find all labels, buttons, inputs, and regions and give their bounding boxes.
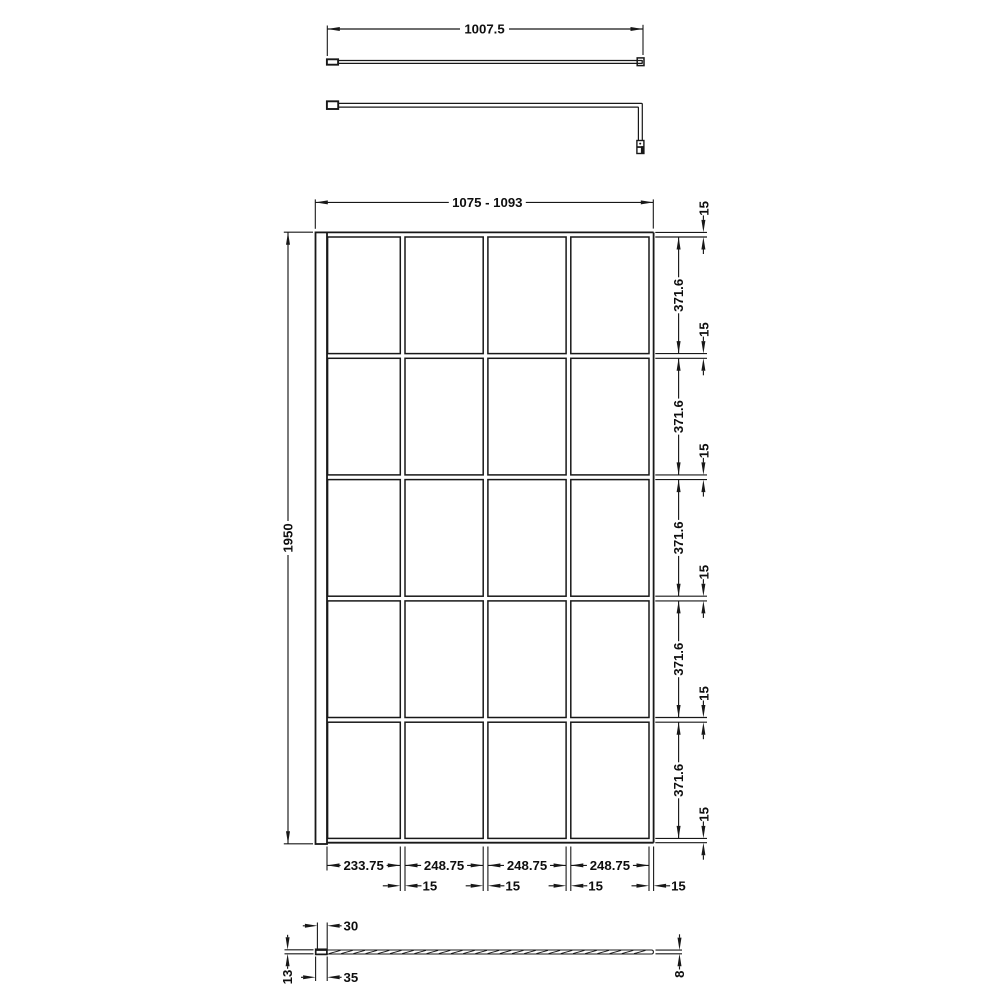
svg-text:8: 8 — [672, 971, 687, 978]
svg-text:1007.5: 1007.5 — [464, 22, 504, 37]
svg-text:15: 15 — [696, 201, 711, 216]
svg-text:248.75: 248.75 — [424, 858, 464, 873]
svg-text:371.6: 371.6 — [671, 400, 686, 433]
svg-text:15: 15 — [588, 878, 603, 893]
svg-text:1950: 1950 — [281, 523, 296, 552]
svg-text:15: 15 — [505, 878, 520, 893]
svg-text:15: 15 — [696, 565, 711, 580]
svg-text:371.6: 371.6 — [671, 764, 686, 797]
svg-text:371.6: 371.6 — [671, 521, 686, 554]
svg-text:15: 15 — [696, 444, 711, 459]
svg-text:1075 - 1093: 1075 - 1093 — [452, 195, 522, 210]
svg-text:15: 15 — [696, 686, 711, 701]
svg-text:371.6: 371.6 — [671, 643, 686, 676]
svg-text:248.75: 248.75 — [507, 858, 547, 873]
svg-text:15: 15 — [423, 878, 438, 893]
svg-text:13: 13 — [280, 970, 295, 985]
svg-text:248.75: 248.75 — [590, 858, 630, 873]
svg-text:15: 15 — [671, 878, 686, 893]
svg-text:233.75: 233.75 — [343, 858, 383, 873]
svg-text:35: 35 — [344, 970, 359, 985]
svg-text:15: 15 — [696, 807, 711, 822]
svg-text:371.6: 371.6 — [671, 279, 686, 312]
svg-text:15: 15 — [696, 322, 711, 337]
svg-text:30: 30 — [344, 918, 359, 933]
